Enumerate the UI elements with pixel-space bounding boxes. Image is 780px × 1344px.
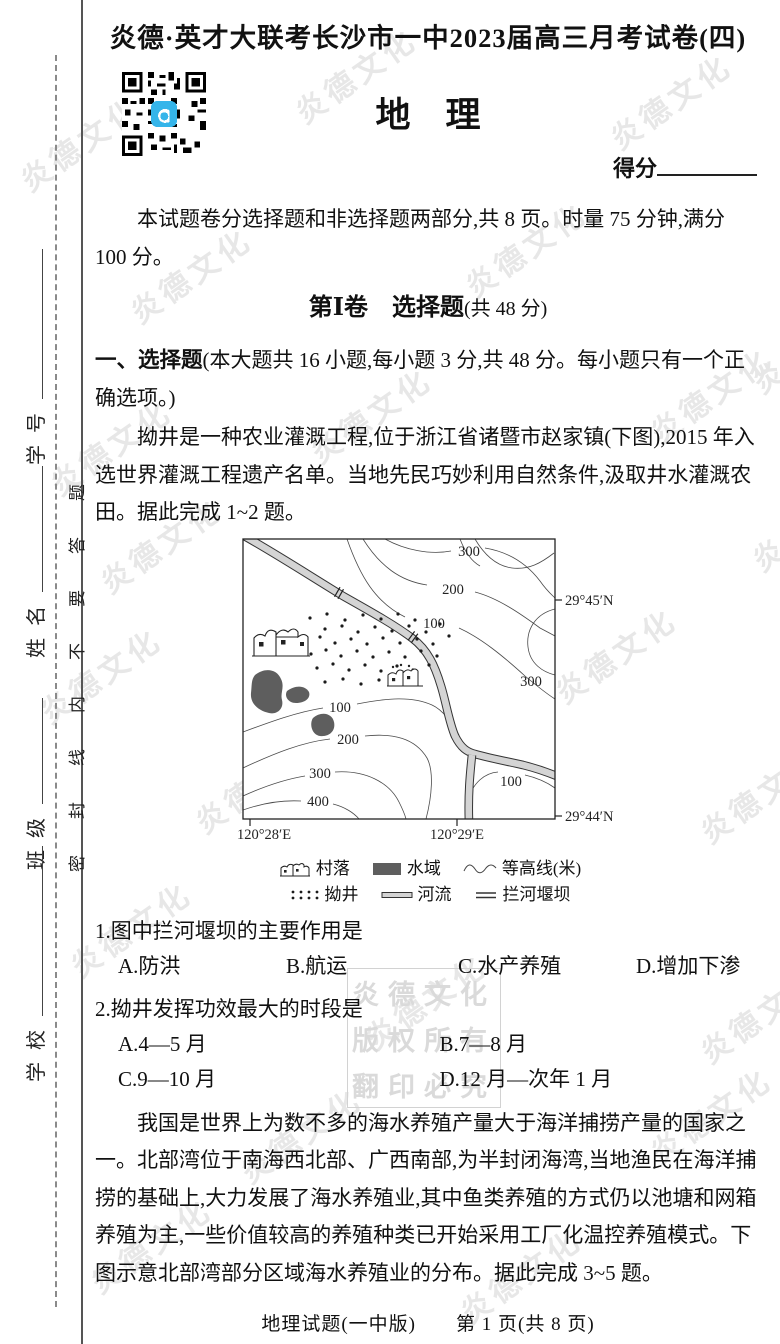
question-2-option-c[interactable]: C.9—10 月	[118, 1062, 440, 1097]
class-blank[interactable]	[28, 698, 43, 804]
question-2: 2.拗井发挥功效最大的时段是 A.4—5 月 B.7—8 月 C.9—10 月 …	[95, 992, 761, 1097]
water-legend-icon	[372, 862, 402, 876]
exam-content: 炎德·英才大联考长沙市一中2023届高三月考试卷(四)	[95, 0, 761, 1343]
question-2-option-a[interactable]: A.4—5 月	[118, 1027, 440, 1062]
longitude-left-label: 120°28′E	[237, 827, 291, 842]
school-field: 学校	[20, 846, 49, 1082]
river-legend-icon	[381, 890, 413, 900]
question-2-stem: 2.拗井发挥功效最大的时段是	[95, 992, 761, 1027]
latitude-top-label: 29°45′N	[565, 593, 614, 609]
intro-paragraph: 本试题卷分选择题和非选择题两部分,共 8 页。时量 75 分钟,满分 100 分…	[95, 200, 761, 276]
question-2-options-row-2: C.9—10 月 D.12 月—次年 1 月	[95, 1062, 761, 1097]
score-line: 得分	[95, 152, 761, 186]
contour-map: 300 200 100 300 100 200 300 400 100	[235, 536, 635, 842]
score-label: 得分	[613, 156, 657, 181]
student-id-label: 学号	[20, 401, 49, 465]
well-legend-icon	[290, 889, 320, 901]
page-footer: 地理试题(一中版) 第 1 页(共 8 页)	[95, 1306, 761, 1343]
question-1-option-b[interactable]: B.航运	[286, 949, 458, 984]
instruction-lead: 一、选择题	[95, 348, 203, 372]
contour-map-figure: 300 200 100 300 100 200 300 400 100	[235, 536, 635, 906]
score-blank[interactable]	[657, 154, 757, 176]
question-2-option-d[interactable]: D.12 月—次年 1 月	[440, 1062, 762, 1097]
village-legend-icon	[279, 860, 311, 878]
student-id-field: 学号	[20, 249, 49, 465]
question-2-options-row-1: A.4—5 月 B.7—8 月	[95, 1027, 761, 1062]
student-name-blank[interactable]	[28, 466, 43, 592]
seal-dashed-line	[55, 55, 57, 1307]
exam-header-title: 炎德·英才大联考长沙市一中2023届高三月考试卷(四)	[95, 20, 761, 56]
svg-text:300: 300	[309, 766, 331, 782]
seal-instruction-text: 密封线内不要答题	[63, 448, 88, 872]
exam-page: 炎德文化 炎德文化 炎德文化 炎德文化 炎德文化 炎德文化 炎德文化 炎德文化 …	[0, 0, 780, 1344]
svg-text:400: 400	[307, 794, 329, 810]
question-1-stem: 1.图中拦河堰坝的主要作用是	[95, 914, 761, 949]
school-blank[interactable]	[28, 846, 43, 1016]
question-1-option-a[interactable]: A.防洪	[118, 949, 286, 984]
question-1: 1.图中拦河堰坝的主要作用是 A.防洪 B.航运 C.水产养殖 D.增加下渗	[95, 914, 761, 984]
legend-water: 水域	[372, 858, 441, 880]
class-field: 班级	[20, 698, 49, 870]
legend-dam: 拦河堰坝	[474, 884, 571, 906]
longitude-right-label: 120°29′E	[430, 827, 484, 842]
latitude-bottom-label: 29°44′N	[565, 809, 614, 825]
svg-text:100: 100	[329, 700, 351, 716]
passage-2: 我国是世界上为数不多的海水养殖产量大于海洋捕捞产量的国家之一。北部湾位于南海西北…	[95, 1105, 761, 1293]
section-instruction: 一、选择题(本大题共 16 小题,每小题 3 分,共 48 分。每小题只有一个正…	[95, 341, 761, 417]
qr-code-image	[122, 72, 206, 156]
legend-contour: 等高线(米)	[463, 858, 581, 880]
qr-code	[122, 72, 206, 156]
legend-row-1: 村落 水域 等高线(米)	[272, 858, 588, 880]
question-1-option-d[interactable]: D.增加下渗	[636, 949, 740, 984]
svg-text:200: 200	[442, 582, 464, 598]
svg-text:100: 100	[423, 616, 445, 632]
svg-text:300: 300	[520, 674, 542, 690]
legend-row-2: 拗井 河流 拦河堰坝	[283, 884, 578, 906]
svg-text:200: 200	[337, 732, 359, 748]
volume-heading-main: 第Ⅰ卷 选择题	[309, 295, 464, 321]
svg-text:100: 100	[500, 774, 522, 790]
student-name-field: 姓名	[20, 466, 49, 658]
student-name-label: 姓名	[20, 594, 49, 658]
dam-legend-icon	[474, 890, 498, 900]
legend-village: 村落	[279, 858, 350, 880]
school-label: 学校	[20, 1018, 49, 1082]
svg-text:300: 300	[458, 544, 480, 560]
volume-heading: 第Ⅰ卷 选择题(共 48 分)	[95, 288, 761, 329]
volume-heading-sub: (共 48 分)	[464, 298, 547, 320]
contour-legend-icon	[463, 862, 497, 876]
map-legend: 村落 水域 等高线(米)	[235, 858, 625, 906]
qr-logo	[151, 101, 177, 127]
passage-1: 拗井是一种农业灌溉工程,位于浙江省诸暨市赵家镇(下图),2015 年入选世界灌溉…	[95, 419, 761, 532]
legend-well: 拗井	[290, 884, 359, 906]
question-1-option-c[interactable]: C.水产养殖	[458, 949, 636, 984]
question-1-options: A.防洪 B.航运 C.水产养殖 D.增加下渗	[95, 949, 761, 984]
student-id-blank[interactable]	[28, 249, 43, 399]
legend-river: 河流	[381, 884, 452, 906]
question-2-option-b[interactable]: B.7—8 月	[440, 1027, 762, 1062]
